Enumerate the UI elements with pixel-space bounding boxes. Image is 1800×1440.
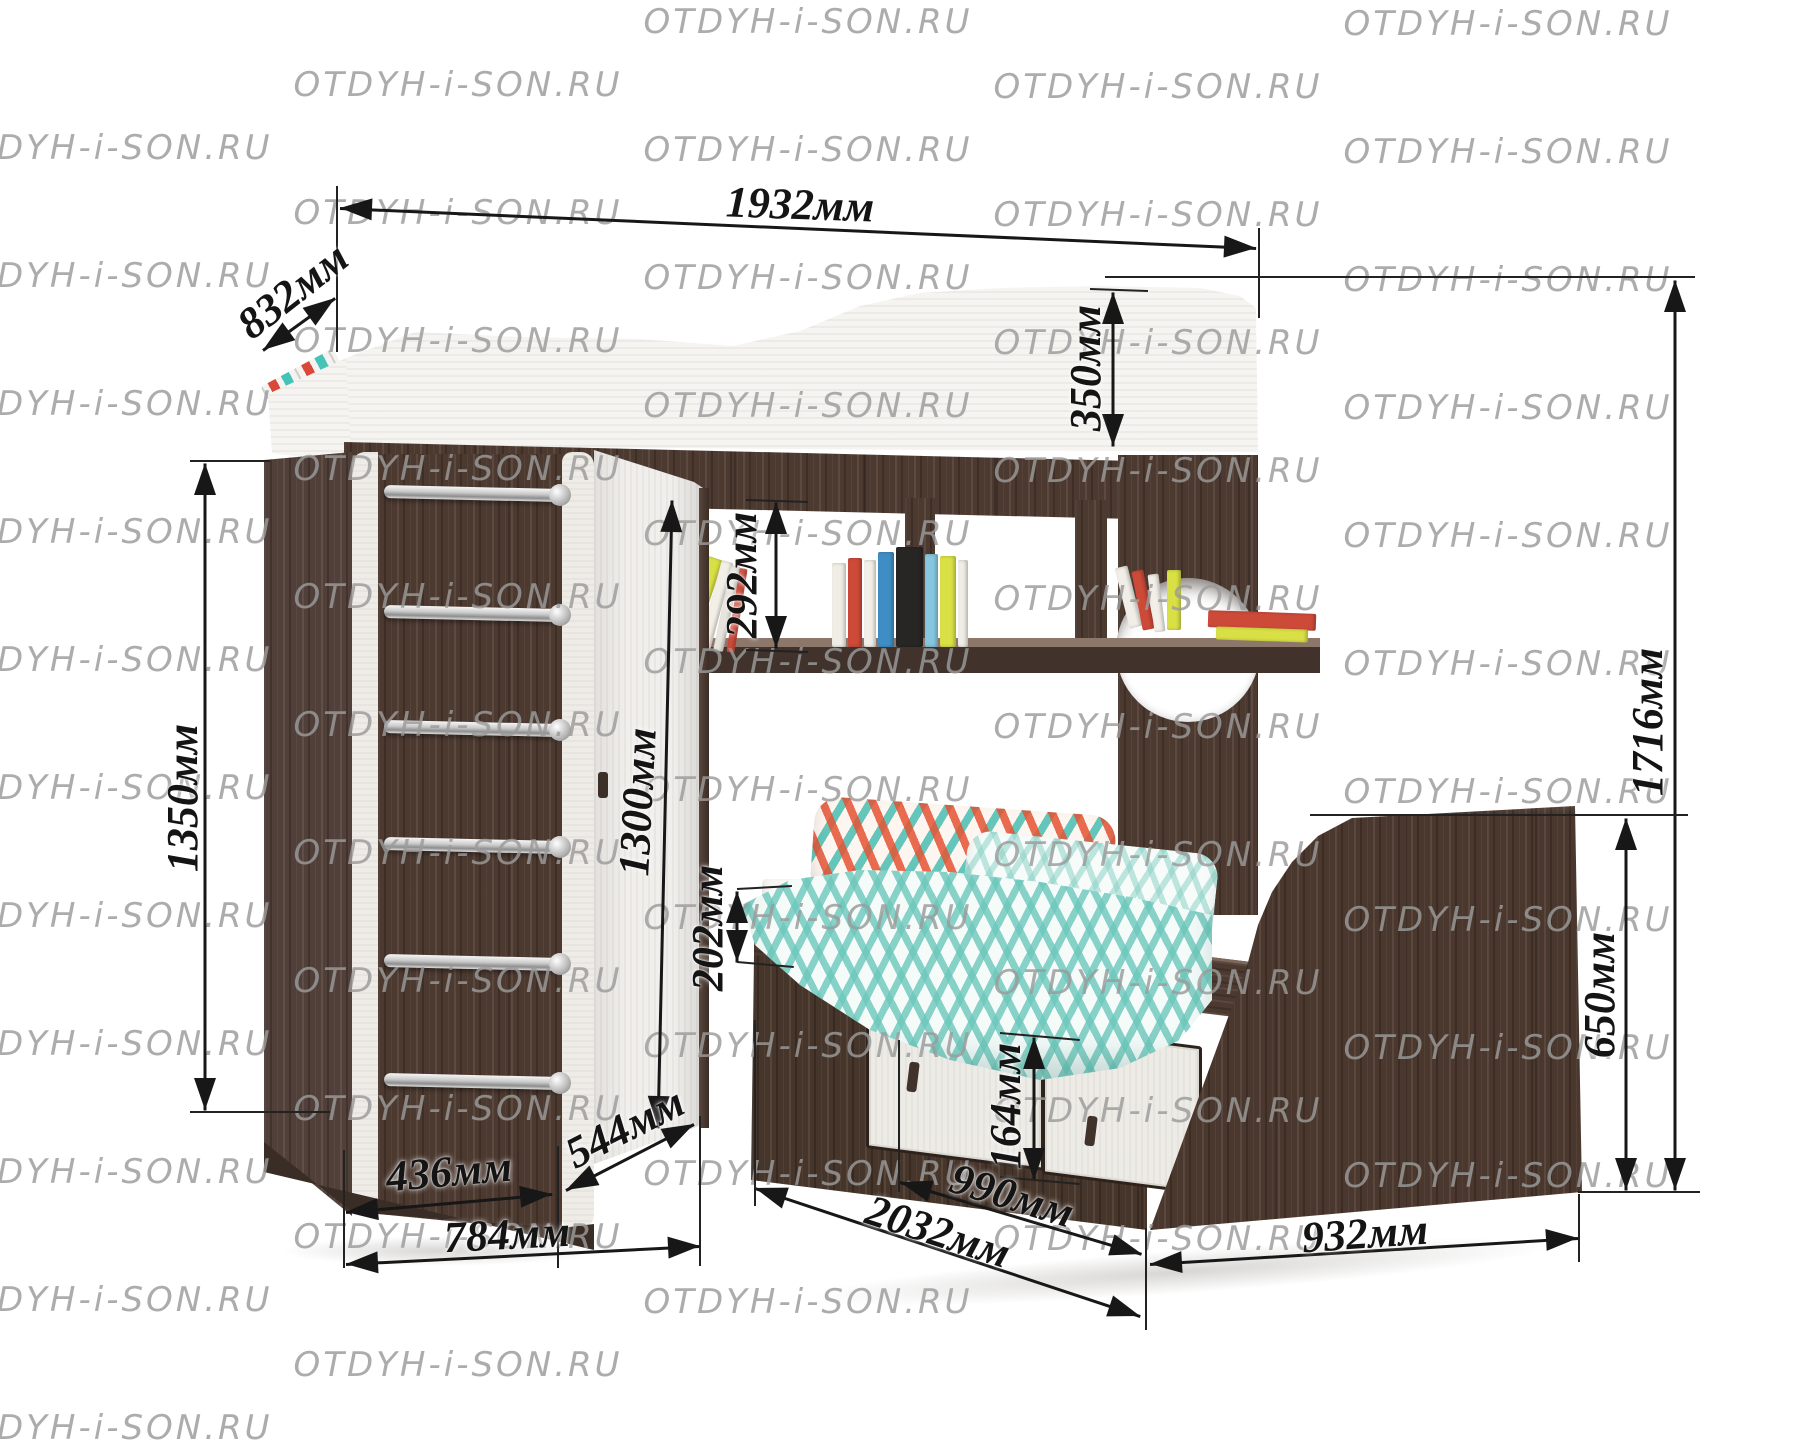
extension-line bbox=[754, 1020, 756, 1206]
watermark-text: OTDYH-i-SON.RU bbox=[0, 1408, 273, 1440]
watermark-text: OTDYH-i-SON.RU bbox=[0, 1152, 273, 1192]
watermark-text: OTDYH-i-SON.RU bbox=[0, 768, 273, 808]
watermark-text: OTDYH-i-SON.RU bbox=[293, 705, 622, 745]
watermark-text: OTDYH-i-SON.RU bbox=[293, 449, 622, 489]
dimension-arrowhead bbox=[1615, 818, 1637, 850]
watermark-text: OTDYH-i-SON.RU bbox=[0, 128, 273, 168]
watermark-text: OTDYH-i-SON.RU bbox=[1343, 388, 1672, 428]
dim-label-bed-rail-height: 202мм bbox=[686, 865, 730, 991]
extension-line bbox=[1578, 1191, 1700, 1193]
watermark-text: OTDYH-i-SON.RU bbox=[643, 258, 972, 298]
watermark-text: OTDYH-i-SON.RU bbox=[293, 65, 622, 105]
dimension-arrowhead bbox=[519, 1183, 553, 1208]
dim-label-wardrobe-depth: 784мм bbox=[443, 1210, 571, 1261]
dimension-arrowhead bbox=[765, 502, 787, 534]
watermark-text: OTDYH-i-SON.RU bbox=[643, 770, 972, 810]
watermark-text: OTDYH-i-SON.RU bbox=[1343, 516, 1672, 556]
watermark-text: OTDYH-i-SON.RU bbox=[993, 195, 1322, 235]
watermark-text: OTDYH-i-SON.RU bbox=[643, 386, 972, 426]
dimension-line bbox=[1674, 280, 1677, 1190]
watermark-text: OTDYH-i-SON.RU bbox=[643, 642, 972, 682]
dimension-arrowhead bbox=[345, 1198, 379, 1223]
dim-label-ladder-height: 1350мм bbox=[161, 724, 205, 872]
watermark-text: OTDYH-i-SON.RU bbox=[993, 963, 1322, 1003]
book bbox=[940, 556, 956, 647]
watermark-text: OTDYH-i-SON.RU bbox=[0, 896, 273, 936]
dimension-arrowhead bbox=[667, 1235, 700, 1259]
watermark-text: OTDYH-i-SON.RU bbox=[643, 514, 972, 554]
dimension-arrowhead bbox=[1545, 1227, 1578, 1251]
watermark-text: OTDYH-i-SON.RU bbox=[293, 577, 622, 617]
watermark-text: OTDYH-i-SON.RU bbox=[643, 130, 972, 170]
furniture-dimension-diagram: OTDYH-i-SON.RUOTDYH-i-SON.RUOTDYH-i-SON.… bbox=[0, 0, 1800, 1440]
extension-line bbox=[1258, 228, 1260, 318]
book bbox=[878, 552, 894, 647]
watermark-text: OTDYH-i-SON.RU bbox=[643, 2, 972, 42]
dimension-arrowhead bbox=[1224, 236, 1257, 259]
extension-line bbox=[1578, 1194, 1580, 1262]
watermark-text: OTDYH-i-SON.RU bbox=[293, 1345, 622, 1385]
dim-label-ladder-depth: 436мм bbox=[384, 1145, 514, 1200]
dimension-arrowhead bbox=[1664, 280, 1686, 312]
watermark-text: OTDYH-i-SON.RU bbox=[993, 707, 1322, 747]
dimension-arrowhead bbox=[340, 197, 373, 220]
watermark-text: OTDYH-i-SON.RU bbox=[1343, 132, 1672, 172]
watermark-text: OTDYH-i-SON.RU bbox=[0, 1024, 273, 1064]
dimension-arrowhead bbox=[1149, 1251, 1182, 1275]
dim-label-drawer-height: 164мм bbox=[984, 1043, 1028, 1169]
wardrobe-door-handle bbox=[598, 772, 608, 798]
watermark-text: OTDYH-i-SON.RU bbox=[0, 256, 273, 296]
watermark-text: OTDYH-i-SON.RU bbox=[293, 321, 622, 361]
book bbox=[832, 563, 846, 647]
dim-label-total-height: 1716мм bbox=[1626, 648, 1670, 796]
watermark-text: OTDYH-i-SON.RU bbox=[293, 833, 622, 873]
book bbox=[864, 560, 876, 647]
extension-line bbox=[190, 460, 270, 462]
watermark-text: OTDYH-i-SON.RU bbox=[993, 1091, 1322, 1131]
watermark-text: OTDYH-i-SON.RU bbox=[1343, 4, 1672, 44]
dimension-arrowhead bbox=[345, 1251, 378, 1275]
dimension-arrowhead bbox=[765, 616, 787, 648]
watermark-text: OTDYH-i-SON.RU bbox=[993, 451, 1322, 491]
watermark-text: OTDYH-i-SON.RU bbox=[643, 1026, 972, 1066]
watermark-text: OTDYH-i-SON.RU bbox=[293, 961, 622, 1001]
shelf-divider bbox=[1075, 500, 1107, 648]
dimension-arrowhead bbox=[660, 500, 683, 532]
dimension-line bbox=[1625, 818, 1628, 1190]
watermark-text: OTDYH-i-SON.RU bbox=[993, 579, 1322, 619]
book bbox=[958, 560, 968, 647]
dimension-arrowhead bbox=[1106, 1295, 1143, 1326]
dim-label-lower-bed-width: 932мм bbox=[1300, 1208, 1429, 1261]
dimension-arrowhead bbox=[1615, 1158, 1637, 1190]
extension-line bbox=[343, 1150, 345, 1268]
dim-label-door-height: 1300мм bbox=[612, 727, 664, 877]
extension-line bbox=[1105, 276, 1695, 278]
dimension-arrowhead bbox=[194, 463, 216, 495]
watermark-text: OTDYH-i-SON.RU bbox=[0, 1280, 273, 1320]
dimension-arrowhead bbox=[1664, 1158, 1686, 1190]
upper-bed-side-panel bbox=[344, 284, 1270, 470]
dim-label-shelf-height: 292мм bbox=[720, 512, 764, 638]
book bbox=[848, 558, 862, 647]
watermark-text: OTDYH-i-SON.RU bbox=[1343, 260, 1672, 300]
watermark-text: OTDYH-i-SON.RU bbox=[993, 323, 1322, 363]
watermark-text: OTDYH-i-SON.RU bbox=[293, 1089, 622, 1129]
extension-line bbox=[1310, 814, 1688, 816]
watermark-text: OTDYH-i-SON.RU bbox=[0, 512, 273, 552]
book bbox=[925, 554, 938, 647]
watermark-text: OTDYH-i-SON.RU bbox=[993, 67, 1322, 107]
dimension-arrowhead bbox=[194, 1078, 216, 1110]
dim-label-upper-bed-length: 1932мм bbox=[725, 180, 875, 229]
watermark-text: OTDYH-i-SON.RU bbox=[0, 384, 273, 424]
extension-line bbox=[898, 1040, 900, 1192]
extension-line bbox=[190, 1111, 330, 1113]
watermark-text: OTDYH-i-SON.RU bbox=[0, 640, 273, 680]
dim-label-footboard-height: 650мм bbox=[1578, 932, 1622, 1058]
book bbox=[896, 547, 923, 647]
watermark-text: OTDYH-i-SON.RU bbox=[643, 1282, 972, 1322]
extension-line bbox=[1145, 1228, 1147, 1330]
watermark-text: OTDYH-i-SON.RU bbox=[993, 835, 1322, 875]
dim-label-upper-rail-height: 350мм bbox=[1064, 305, 1108, 431]
